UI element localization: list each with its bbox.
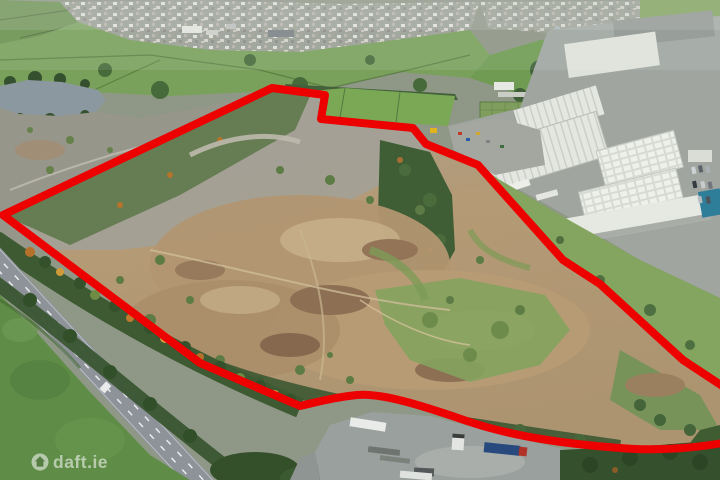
aerial-photo: daft.ie (0, 0, 720, 480)
mansion (494, 82, 514, 90)
digger (430, 128, 437, 133)
watermark: daft.ie (32, 452, 109, 472)
haze (0, 0, 720, 30)
watermark-text: daft.ie (53, 452, 108, 472)
daft-house-icon (32, 454, 49, 471)
aerial-photo-canvas: daft.ie (0, 0, 720, 480)
truck-cab (518, 447, 527, 457)
